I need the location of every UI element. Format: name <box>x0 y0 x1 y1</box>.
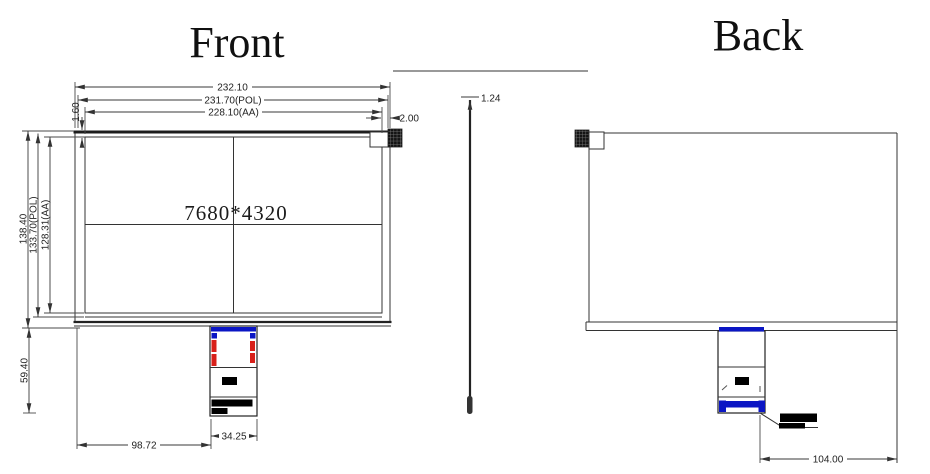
back-corner-mesh-pad <box>575 130 589 147</box>
side-fpc-fold-bulge <box>467 396 473 414</box>
dim-outline-height-label: 138.40 <box>19 213 30 244</box>
dim-thickness: 1.24 <box>461 94 501 112</box>
front-fpc-red-mark-left-2 <box>212 354 217 366</box>
dim-pol-height: 133.70(POL) <box>29 134 40 318</box>
back-label-bar-2 <box>779 423 805 429</box>
lcd-panel-outline-drawing: Front 7680*4320 <box>0 0 930 474</box>
back-corner-contact-pad <box>575 130 604 149</box>
front-fpc-red-mark-left-1 <box>212 340 217 352</box>
dim-active-area-height: 128.31(AA) <box>41 137 52 313</box>
dim-fpc-width: 34.25 <box>211 431 257 443</box>
corner-mesh-pad <box>388 129 402 147</box>
front-fpc-red-mark-right-2 <box>250 353 255 363</box>
front-view-title: Front <box>189 18 284 67</box>
front-fpc-label-bar-1 <box>212 400 253 407</box>
front-fpc-corner-mark-right <box>250 333 256 339</box>
dim-top-edge-gap-label: 1.60 <box>71 102 82 122</box>
front-fpc-corner-mark-left <box>212 333 218 339</box>
front-top-dimensions: 232.10 231.70(POL) 228.10(AA) 2.00 <box>75 82 419 134</box>
dim-fpc-to-right-edge-label: 104.00 <box>813 455 844 466</box>
front-active-area <box>85 137 382 313</box>
dim-fpc-drop-height-label: 59.40 <box>20 358 31 383</box>
front-fpc-label-bar-2 <box>212 408 228 414</box>
side-view: 1.24 <box>393 71 588 414</box>
front-corner-contact-pad <box>370 129 402 147</box>
back-view: Back <box>575 11 897 466</box>
dim-outline-width-label: 232.10 <box>217 83 248 94</box>
front-fpc-tape-strip <box>211 327 256 332</box>
dim-active-area-width: 228.10(AA) <box>85 107 382 119</box>
back-fpc-connector-end-right <box>759 401 766 413</box>
front-resolution-label: 7680*4320 <box>184 201 288 225</box>
dim-fpc-to-right-edge: 104.00 <box>760 415 897 466</box>
dim-thickness-label: 1.24 <box>481 94 501 105</box>
dim-top-edge-gap: 1.60 <box>71 102 82 147</box>
front-panel-outline <box>74 131 392 326</box>
front-fpc-driver-chip <box>222 377 237 385</box>
back-fpc-connector <box>718 327 765 413</box>
back-fpc-connector-bar <box>725 401 762 408</box>
dim-right-edge-gap-label: 2.00 <box>400 114 420 125</box>
back-fpc-tape-strip <box>719 327 764 332</box>
dim-outline-height: 138.40 <box>19 131 30 328</box>
back-fpc-connector-end-left <box>719 401 726 413</box>
dim-fpc-width-label: 34.25 <box>221 432 246 443</box>
dim-active-area-height-label: 128.31(AA) <box>41 200 52 251</box>
dim-active-area-width-label: 228.10(AA) <box>208 108 259 119</box>
dim-fpc-offset-from-left-label: 98.72 <box>131 441 156 452</box>
dim-fpc-drop-height: 59.40 <box>20 328 31 413</box>
back-label-bar-1 <box>780 414 817 423</box>
front-view: Front 7680*4320 <box>19 18 420 452</box>
front-fpc-red-mark-right-1 <box>250 341 255 351</box>
dim-pol-width-label: 231.70(POL) <box>204 96 261 107</box>
dim-outline-width: 232.10 <box>75 82 390 94</box>
front-fpc-connector <box>210 326 257 416</box>
engineering-drawing-canvas: Front 7680*4320 <box>0 0 930 474</box>
dim-fpc-offset-from-left: 98.72 <box>77 440 211 452</box>
dim-pol-width: 231.70(POL) <box>78 95 388 107</box>
dim-right-edge-gap: 2.00 <box>366 114 419 125</box>
back-fpc-driver-chip <box>735 377 749 385</box>
back-view-title: Back <box>713 11 803 60</box>
back-fpc-label-callout <box>760 413 818 429</box>
dim-pol-height-label: 133.70(POL) <box>29 196 40 253</box>
corner-pad-window <box>370 132 390 147</box>
back-corner-pad-window <box>589 132 604 149</box>
